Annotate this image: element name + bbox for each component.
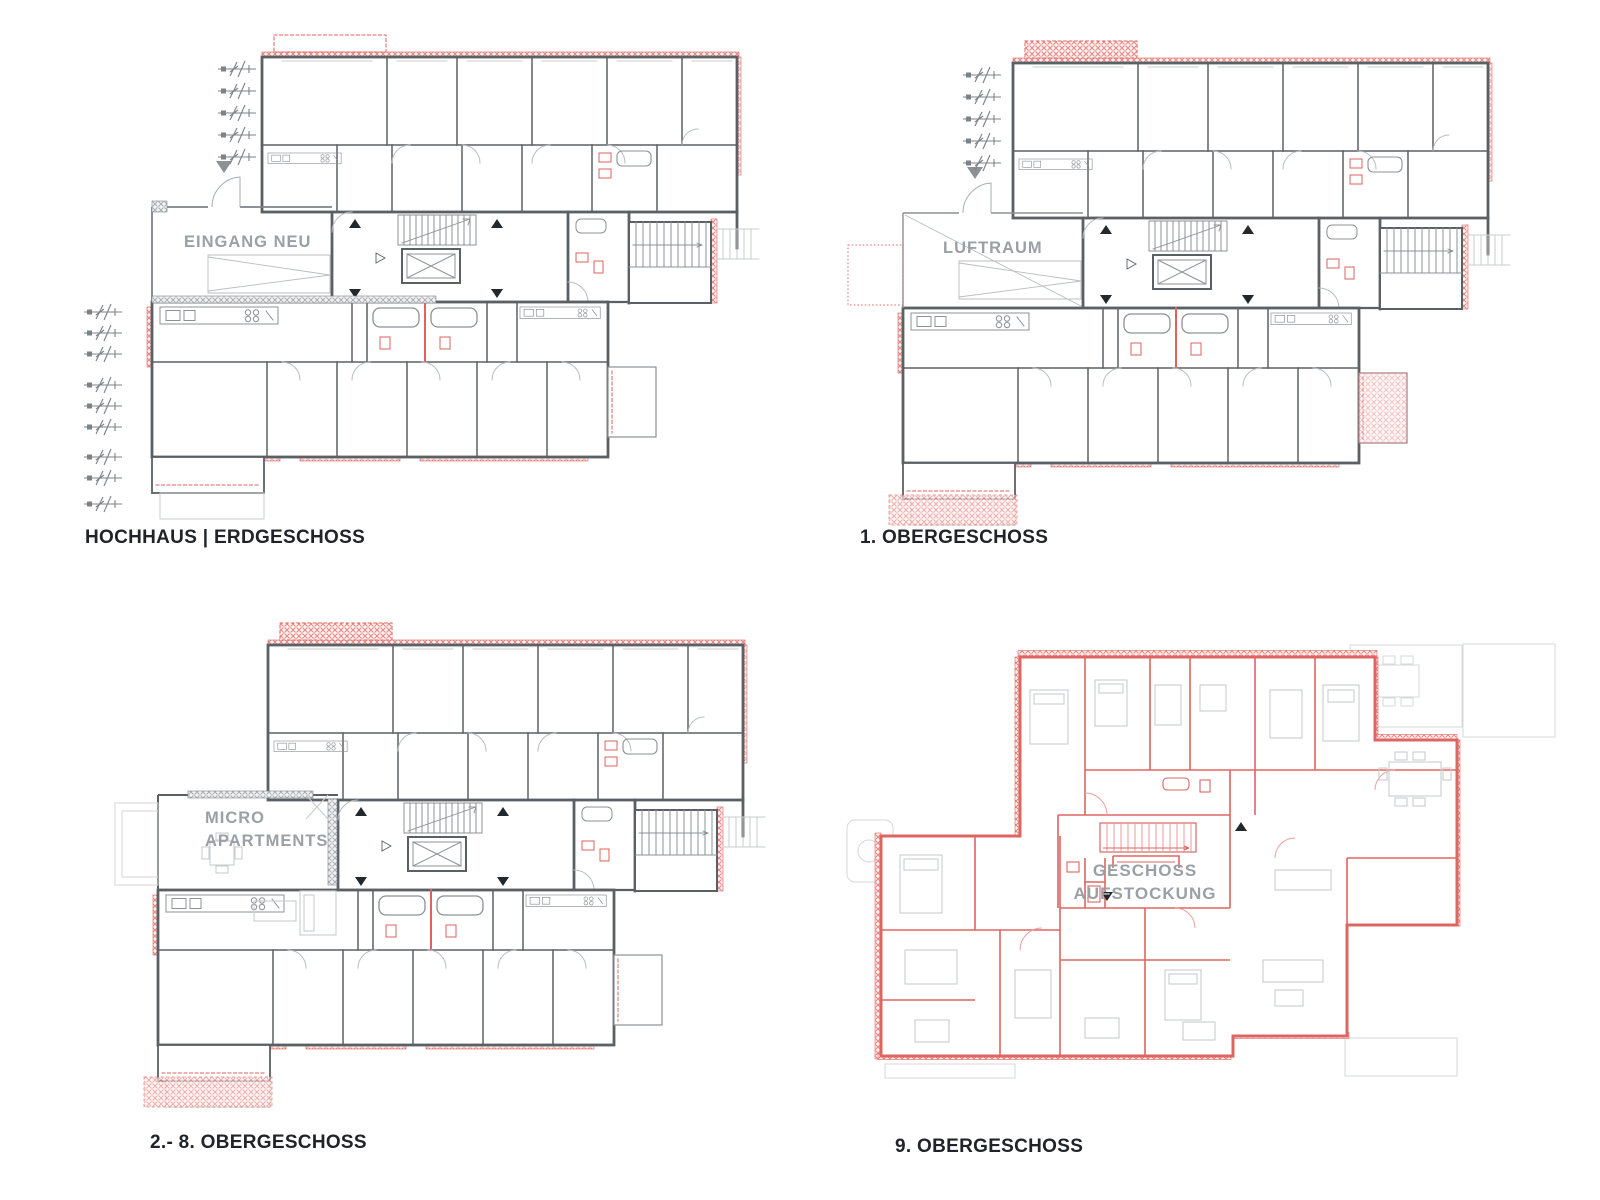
title-og9: 9. OBERGESCHOSS	[895, 1136, 1083, 1158]
tree-symbols-left	[84, 304, 122, 512]
floor-plan-og1-drawing: LUFTRAUM	[840, 10, 1560, 530]
tree-symbols-top	[218, 61, 256, 165]
title-og1: 1. OBERGESCHOSS	[860, 527, 1048, 549]
room-label-geschoss: GESCHOSS	[1093, 861, 1197, 880]
room-label-eingang-neu: EINGANG NEU	[184, 233, 311, 251]
floor-plan-og9: GESCHOSS AUFSTOCKUNG	[845, 630, 1565, 1085]
title-og2-8: 2.- 8. OBERGESCHOSS	[150, 1132, 367, 1154]
balcony-bottom-left	[144, 1077, 272, 1107]
room-label-apartments: APARTMENTS	[205, 832, 328, 850]
floor-plan-og2-8: MICRO APARTMENTS	[115, 625, 815, 1115]
floor-plan-erdgeschoss-drawing: EINGANG NEU	[80, 10, 780, 525]
balcony-top-left	[280, 623, 392, 640]
floor-plan-erdgeschoss: EINGANG NEU	[80, 10, 780, 525]
balcony-right	[1359, 373, 1407, 443]
room-label-micro: MICRO	[205, 809, 265, 827]
tree-symbols-top	[963, 67, 1001, 171]
floor-plan-og1: LUFTRAUM	[840, 10, 1560, 530]
ghost-balconies	[115, 803, 158, 885]
balcony-bottom-left	[889, 495, 1017, 525]
plan-sheet: EINGANG NEU HOCH	[0, 0, 1600, 1200]
floor-plan-og2-8-drawing: MICRO APARTMENTS	[115, 625, 815, 1115]
balcony-top-left	[1025, 41, 1137, 58]
room-label-luftraum: LUFTRAUM	[943, 239, 1043, 257]
entrance-arrow-icon	[216, 161, 232, 173]
room-label-aufstockung: AUFSTOCKUNG	[1074, 884, 1217, 903]
title-erdgeschoss: HOCHHAUS | ERDGESCHOSS	[85, 527, 365, 549]
floor-plan-og9-drawing: GESCHOSS AUFSTOCKUNG	[845, 630, 1565, 1085]
